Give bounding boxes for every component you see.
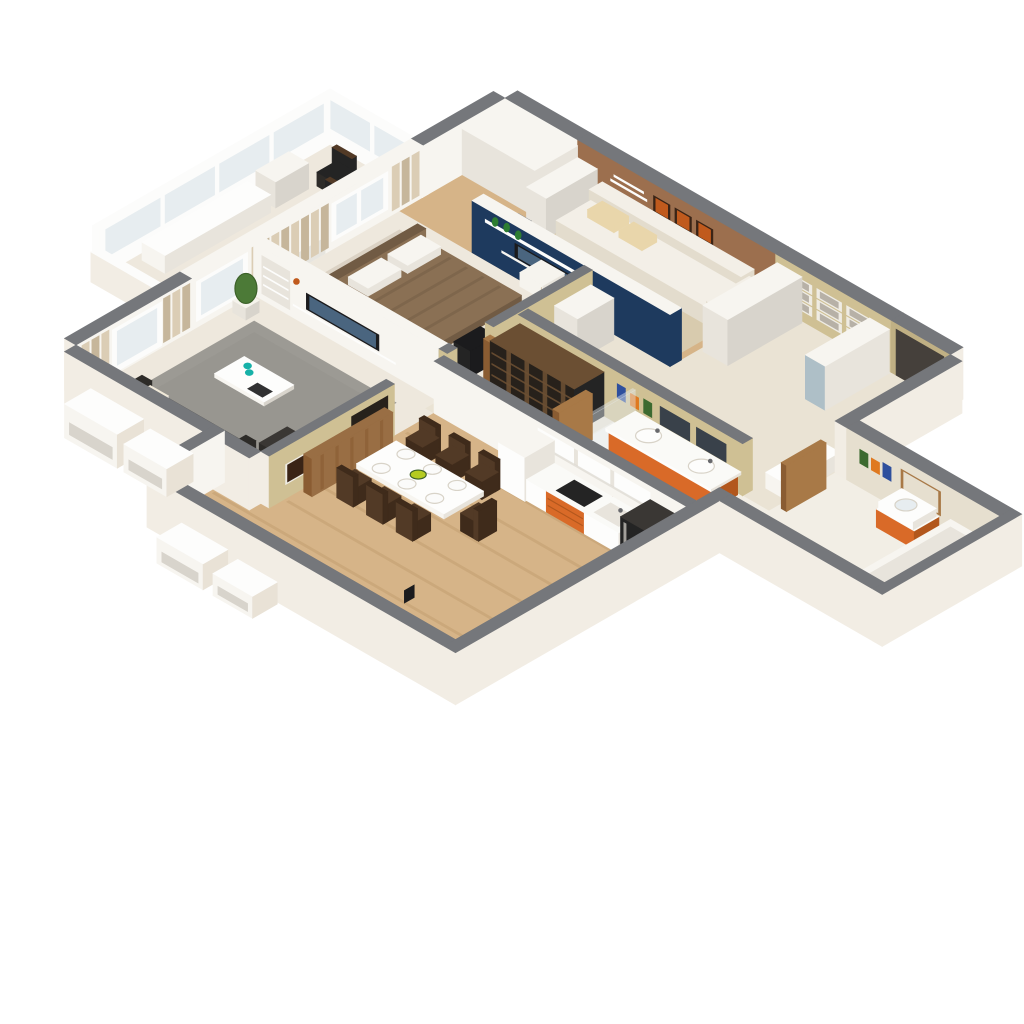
dining-plate-0 xyxy=(397,449,415,459)
kitchen-upper-gap-1 xyxy=(574,449,577,466)
dining-chair-end-back-front xyxy=(474,509,479,542)
bedroom-bottle-1 xyxy=(492,217,498,226)
dining-chair-s0-back-side xyxy=(353,474,358,507)
dining-chair-s2-back-side xyxy=(413,509,418,542)
dining-plate-3 xyxy=(372,463,390,473)
wall-entry-corridor-side xyxy=(743,438,753,496)
media-flower-accent xyxy=(293,278,299,284)
curtain-fold-2 xyxy=(392,163,399,211)
dining-slat-line-4 xyxy=(321,454,324,490)
wing-basin xyxy=(895,499,917,511)
curtain-fold-3 xyxy=(321,204,328,252)
curtain-fold-12 xyxy=(173,289,180,337)
curtain-fold-13 xyxy=(163,295,170,343)
wall-bedroom-navy-side xyxy=(670,308,682,367)
lattice-stile-1 xyxy=(525,361,529,407)
dining-slat-panel-front xyxy=(304,454,312,497)
dining-chair-s1-back-side xyxy=(383,491,388,524)
wall-se-upper-front xyxy=(835,421,847,480)
wall-sw-living-side xyxy=(249,451,261,510)
wall-living-dining-front xyxy=(261,451,269,508)
dining-fruit-bowl xyxy=(410,470,426,479)
coffee-cup-2 xyxy=(245,370,253,376)
dining-plate-4 xyxy=(398,479,416,489)
curtain-fold-11 xyxy=(183,283,190,331)
wing-door-open-front xyxy=(781,463,786,512)
floor-plan-render xyxy=(0,0,1024,1024)
curtain-fold-5 xyxy=(301,215,308,263)
curtain-fold-1 xyxy=(402,157,409,205)
wall-wing-e-front xyxy=(873,589,882,646)
curtain-fold-4 xyxy=(311,209,318,257)
bath-tap-2 xyxy=(708,459,712,463)
coffee-cup-1 xyxy=(244,363,252,369)
lattice-stile-0 xyxy=(507,350,511,396)
floor-plan-stage xyxy=(0,0,1024,1024)
bath-tap-1 xyxy=(655,429,659,433)
dining-plate-2 xyxy=(448,480,466,490)
kitchen-upper-gap-2 xyxy=(611,470,614,487)
bedroom-bottle-2 xyxy=(504,223,510,232)
bedroom-bottle-3 xyxy=(515,231,521,240)
kitchen-tap xyxy=(619,508,623,512)
dining-plate-5 xyxy=(426,493,444,503)
dining-slat-line-2 xyxy=(351,437,354,473)
living-plant xyxy=(235,273,257,303)
curtain-fold-0 xyxy=(412,151,419,199)
lattice-stile-2 xyxy=(543,371,547,417)
wall-se-lower-front xyxy=(444,646,456,705)
